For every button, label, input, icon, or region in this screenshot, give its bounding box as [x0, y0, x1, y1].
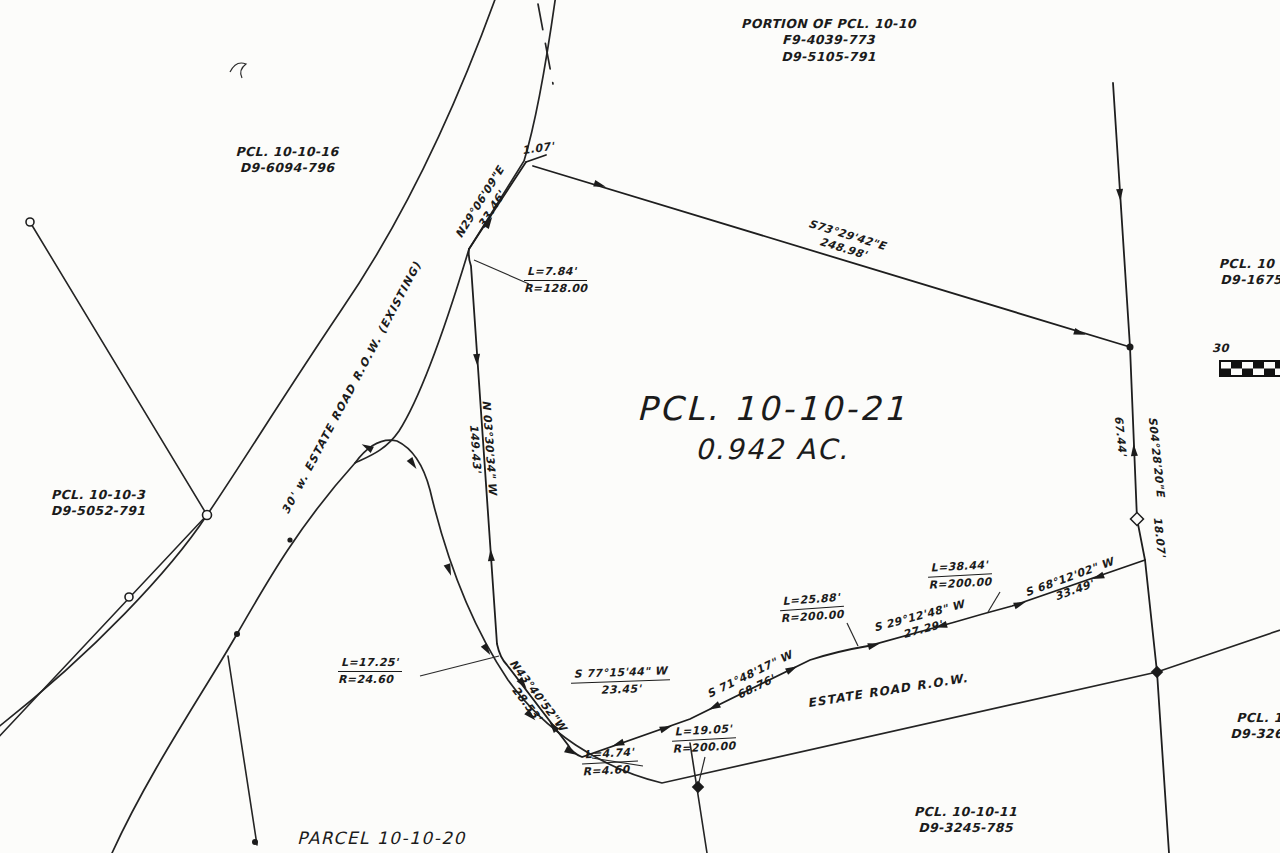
survey-plat-map: PORTION OF PCL. 10-10 F9-4039-773 D9-510… — [0, 0, 1280, 853]
parcel-area: 0.942 AC. — [617, 432, 927, 467]
label-pcl-10-10-21-title: PCL. 10-10-21 0.942 AC. — [617, 388, 927, 467]
curve-label-l38-44: L=38.44' R=200.00 — [927, 558, 992, 592]
curve-label-l7-84: L=7.84' R=128.00 — [524, 265, 587, 296]
deed-ref: D9-3245-785 — [903, 820, 1028, 836]
bearing-label-s77: S 77°15'44" W 23.45' — [570, 664, 670, 698]
deed-ref: F9-4039-773 — [716, 32, 941, 48]
deed-ref: D9-1675- — [1204, 272, 1280, 288]
curve-label-l17-25: L=17.25' R=24.60 — [338, 656, 402, 687]
curve-radius: R=4.60 — [582, 761, 638, 779]
curve-length: L=17.25' — [338, 656, 402, 672]
curve-label-l4-74: L=4.74' R=4.60 — [581, 746, 638, 779]
parcel-id: PCL. 10-10-21 — [617, 388, 927, 429]
label-pcl-10-10-3: PCL. 10-10-3 D9-5052-791 — [38, 487, 158, 520]
deed-ref: D9-5052-791 — [38, 503, 158, 519]
label-pcl-10-right-edge: PCL. 10 R D9-1675- — [1204, 256, 1280, 289]
scale-value: 30 — [1212, 341, 1229, 355]
parcel-id: PCL. 10-10-16 — [222, 144, 352, 160]
deed-ref: D9-6094-796 — [222, 160, 352, 176]
parcel-id: PCL. 10-10-3 — [38, 487, 158, 503]
deed-ref: D9-3265- — [1224, 726, 1280, 742]
parcel-id: PORTION OF PCL. 10-10 — [716, 16, 941, 32]
deed-ref: D9-5105-791 — [716, 49, 941, 65]
parcel-id: PARCEL 10-10-20 — [297, 828, 466, 848]
label-pcl-10-bottom-right-edge: PCL. 10 D9-3265- — [1224, 710, 1280, 743]
label-parcel-10-10-20: PARCEL 10-10-20 — [297, 828, 466, 849]
parcel-id: PCL. 10 — [1224, 710, 1280, 726]
scale-bar — [1220, 361, 1280, 376]
label-portion-of-pcl-10-10: PORTION OF PCL. 10-10 F9-4039-773 D9-510… — [716, 16, 941, 65]
label-pcl-10-10-16: PCL. 10-10-16 D9-6094-796 — [222, 144, 352, 177]
label-pcl-10-10-11: PCL. 10-10-11 D9-3245-785 — [903, 804, 1028, 837]
curve-label-l19-05: L=19.05' R=200.00 — [671, 722, 736, 756]
curve-length: L=7.84' — [524, 265, 587, 281]
scale-bar-label: 30 — [1212, 341, 1229, 355]
curve-label-l25-88: L=25.88' R=200.00 — [779, 591, 845, 626]
curve-radius: R=24.60 — [338, 672, 402, 687]
curve-radius: R=128.00 — [524, 281, 587, 296]
parcel-id: PCL. 10 R — [1204, 256, 1280, 272]
parcel-boundary-lines — [469, 83, 1169, 853]
parcel-id: PCL. 10-10-11 — [903, 804, 1028, 820]
